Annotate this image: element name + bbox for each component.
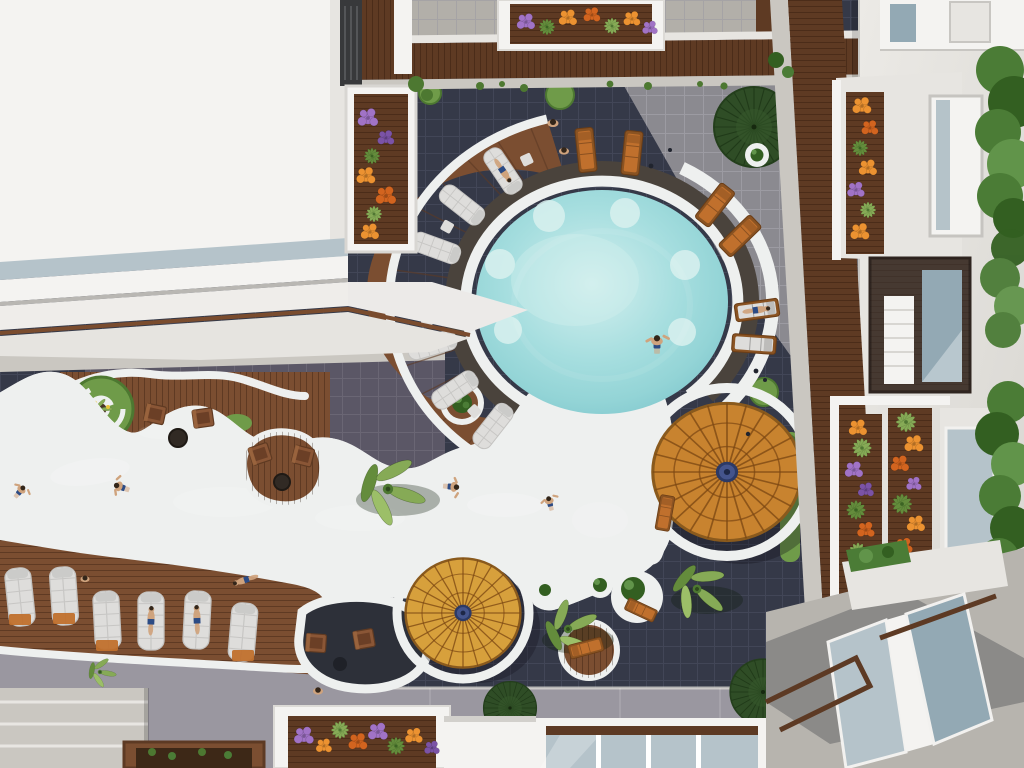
parasol-small: Small round timber parasol bbox=[397, 547, 529, 679]
upper-balcony bbox=[832, 72, 982, 262]
framed-window bbox=[870, 258, 970, 392]
scene-root: Winding lazy-river pool Round lagoon poo… bbox=[0, 0, 1024, 768]
bottom-wood-planter bbox=[124, 742, 264, 768]
bottom-planter-box bbox=[274, 706, 450, 768]
render-canvas: Winding lazy-river pool Round lagoon poo… bbox=[0, 0, 1024, 768]
glass-balcony-band bbox=[536, 718, 766, 768]
top-planter-box bbox=[498, 0, 664, 50]
left-balcony-planter bbox=[346, 86, 416, 252]
teardrop-island bbox=[244, 432, 323, 505]
